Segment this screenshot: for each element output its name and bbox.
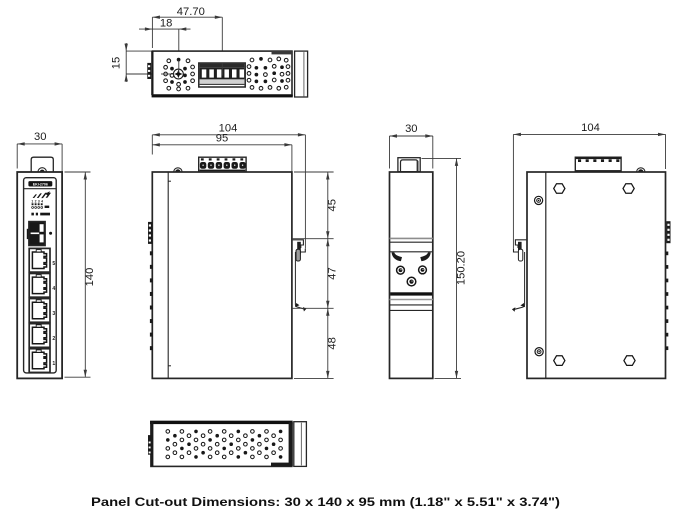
- svg-text:3: 3: [52, 311, 55, 317]
- svg-text:95: 95: [216, 133, 228, 145]
- svg-text:45: 45: [326, 199, 338, 211]
- svg-text:47.70: 47.70: [177, 6, 205, 18]
- svg-text:EKI-2706: EKI-2706: [33, 182, 48, 186]
- svg-text:18: 18: [160, 17, 172, 29]
- svg-text:104: 104: [581, 122, 600, 134]
- svg-text:4: 4: [52, 286, 55, 292]
- svg-text:47: 47: [326, 267, 338, 279]
- svg-text:2: 2: [52, 336, 55, 342]
- svg-text:150.20: 150.20: [455, 251, 467, 285]
- svg-text:Panel Cut-out Dimensions: 30 x: Panel Cut-out Dimensions: 30 x 140 x 95 …: [91, 495, 560, 509]
- svg-text:1: 1: [52, 361, 55, 367]
- svg-text:48: 48: [326, 337, 338, 349]
- svg-text:5: 5: [52, 261, 55, 267]
- svg-text:15: 15: [111, 57, 123, 69]
- svg-text:30: 30: [34, 131, 46, 143]
- svg-text:30: 30: [405, 123, 417, 135]
- svg-text:1 2 3 4: 1 2 3 4: [31, 200, 43, 204]
